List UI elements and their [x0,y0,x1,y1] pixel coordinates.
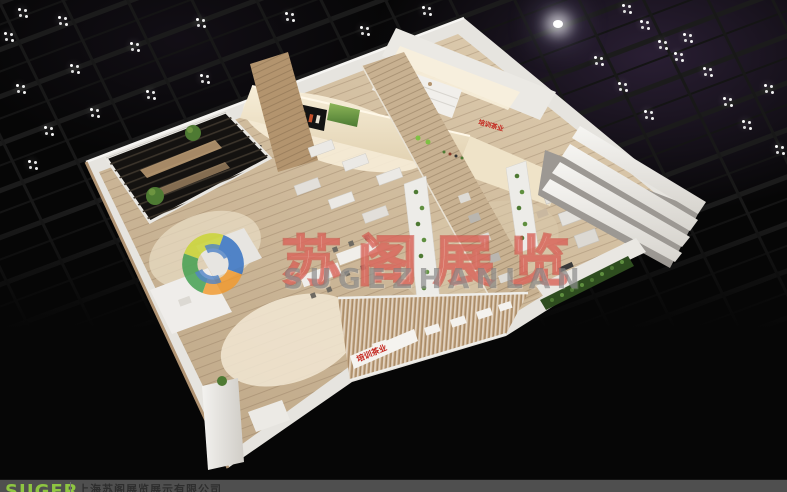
footer-logo-text: SUGER [5,481,79,492]
booth-render: 培训茶业 培训茶业 [0,0,787,492]
footer-company-name: 上海苏阁展览展示有限公司 [78,481,222,492]
potted-plant [217,376,227,386]
tree-plant [146,187,164,205]
tree-plant [185,125,201,141]
footer-bar: SUGER 上海苏阁展览展示有限公司 [0,479,787,492]
footer-divider [70,482,71,492]
scene: 培训茶业 培训茶业 [0,0,787,492]
